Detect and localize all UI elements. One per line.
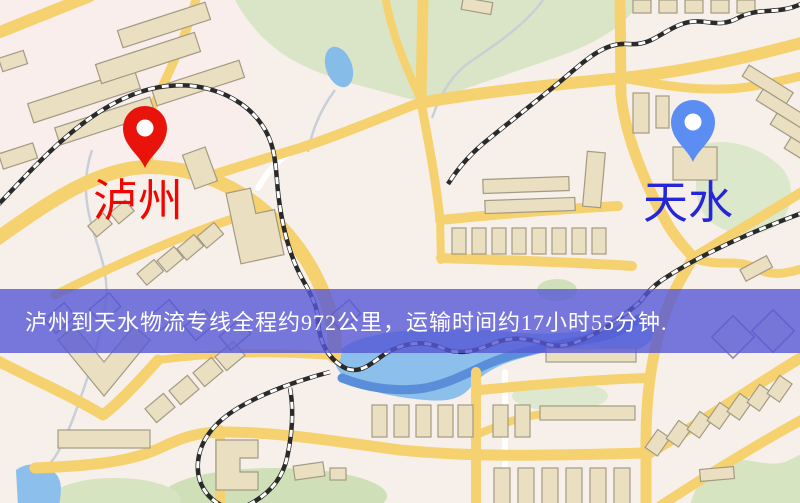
- luzhou-pin-hole: [137, 120, 154, 137]
- route-info-banner: 泸州到天水物流专线全程约972公里，运输时间约17小时55分钟.: [0, 289, 800, 353]
- route-info-text: 泸州到天水物流专线全程约972公里，运输时间约17小时55分钟.: [25, 305, 668, 337]
- tianshui-label: 天水: [643, 178, 733, 228]
- map-screenshot: 泸州 天水 泸州到天水物流专线全程约972公里，运输时间约17小时55分钟.: [0, 0, 800, 503]
- luzhou-label: 泸州: [93, 176, 183, 226]
- tianshui-pin-hole: [685, 114, 702, 131]
- map-canvas[interactable]: 泸州 天水: [0, 0, 800, 503]
